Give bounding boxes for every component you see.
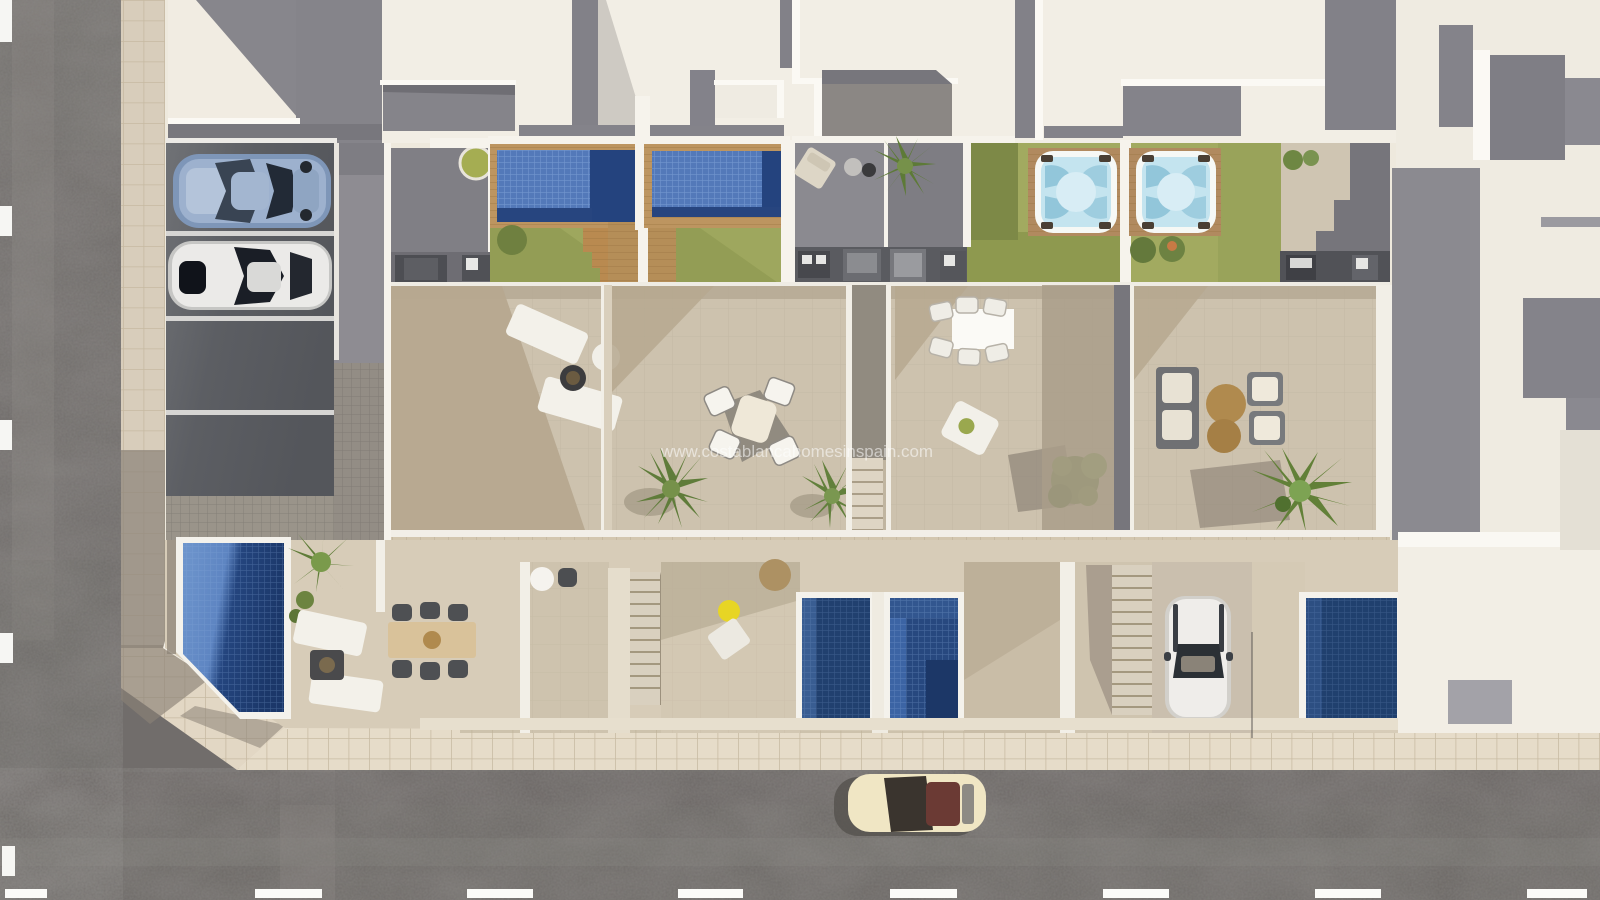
svg-text:www.costablancahomesinspain.co: www.costablancahomesinspain.com: [660, 442, 933, 461]
